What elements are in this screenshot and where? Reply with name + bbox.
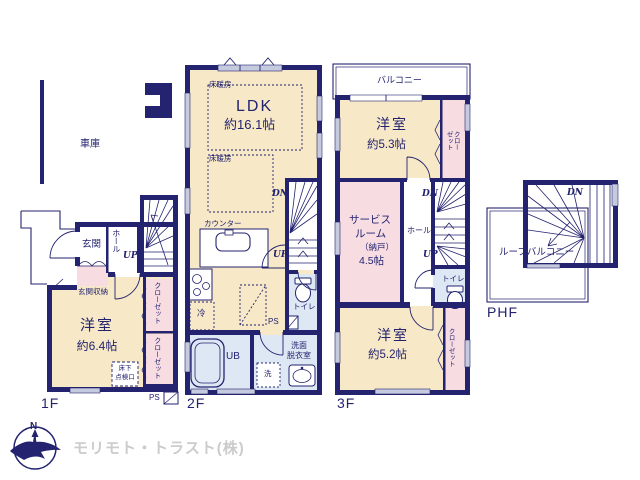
f3-hall-label: ホール	[407, 226, 431, 235]
f2-ldk-size: 約16.1帖	[224, 118, 275, 133]
f2-toilet-label: トイレ	[293, 303, 316, 312]
phf-dn-label: DN	[567, 188, 583, 198]
f1-closet2-label: クローゼット	[153, 337, 161, 387]
f2-washer-label: 洗	[264, 370, 272, 379]
f3-service-room-label-3: （納戸）	[360, 243, 394, 253]
f3-up-label: UP	[423, 250, 438, 260]
f1-room-size: 約6.4帖	[68, 340, 126, 354]
f3-dn-label: DN	[422, 189, 438, 199]
f2-up-label: UP	[273, 250, 288, 260]
f1-ps-label: PS	[149, 393, 160, 402]
f1-hatch-label-2: 点検口	[112, 374, 138, 381]
floor-plan: 車庫 玄関 ホール UP 玄関収納 洋室 約6.4帖 クローゼット クローゼット…	[0, 0, 640, 480]
f3-floor-label: 3F	[337, 395, 355, 411]
f2-ps-label: PS	[268, 317, 279, 326]
f1-hall-label: ホール	[111, 229, 120, 261]
genkan-entry-door	[50, 231, 77, 258]
f2-washroom-label-1: 洗面	[291, 341, 307, 350]
garage-label: 車庫	[80, 139, 100, 151]
f3-toilet-label: トイレ	[442, 275, 465, 284]
f3-closet-bottom-label: クローゼット	[447, 328, 454, 378]
f2-floor-label: 2F	[187, 395, 205, 411]
f1-closet1-label: クローゼット	[153, 282, 161, 332]
washbasin-icon	[289, 365, 315, 386]
kitchen-sink-icon	[200, 229, 268, 267]
f2-counter-label: カウンター	[204, 220, 242, 229]
f3-closet-top-label: クローゼット	[445, 131, 459, 156]
compass-icon	[10, 427, 61, 469]
f2-washroom-label-2: 脱衣室	[287, 351, 311, 360]
toilet-icon-2f	[295, 278, 311, 302]
f2-dn-label: DN	[272, 189, 288, 199]
f3-room2-size: 約5.2帖	[368, 349, 407, 362]
compass-n-label: N	[30, 421, 37, 433]
f1-room-name: 洋室	[74, 317, 120, 334]
f3-room1-name: 洋室	[376, 116, 408, 132]
f2-ldk-name: LDK	[236, 98, 273, 116]
awning-window-mark-1	[224, 58, 236, 65]
room-fills	[50, 68, 618, 390]
f1-hatch-label-1: 床下	[112, 365, 138, 372]
f3-service-room-label-4: 4.5帖	[359, 255, 384, 267]
stove-icon	[188, 269, 212, 300]
f1-up-label: UP	[123, 251, 138, 261]
f3-room1-size: 約5.3帖	[367, 139, 406, 152]
f1-genkan-storage-label: 玄関収納	[78, 288, 108, 297]
f1-genkan-label: 玄関	[82, 240, 101, 251]
f2-floor-heating-1-label: 床暖房	[209, 81, 232, 90]
f2-floor-heating-2-label: 床暖房	[209, 155, 232, 164]
f2-bath-label: UB	[226, 351, 240, 363]
f3-room2-name: 洋室	[377, 327, 409, 343]
phf-floor-label: PHF	[487, 304, 518, 320]
phf-roof-balcony-label: ルーフバルコニー	[499, 248, 574, 259]
f1-floor-label: 1F	[41, 395, 59, 411]
f3-balcony-label: バルコニー	[377, 75, 422, 85]
company-name: モリモト・トラスト(株)	[73, 440, 245, 457]
f3-service-room-label-1: サービス	[349, 214, 391, 226]
f2-fridge-label: 冷	[197, 309, 206, 319]
awning-window-mark-2	[262, 58, 274, 65]
f3-service-room-label-2: ルーム	[355, 228, 386, 240]
